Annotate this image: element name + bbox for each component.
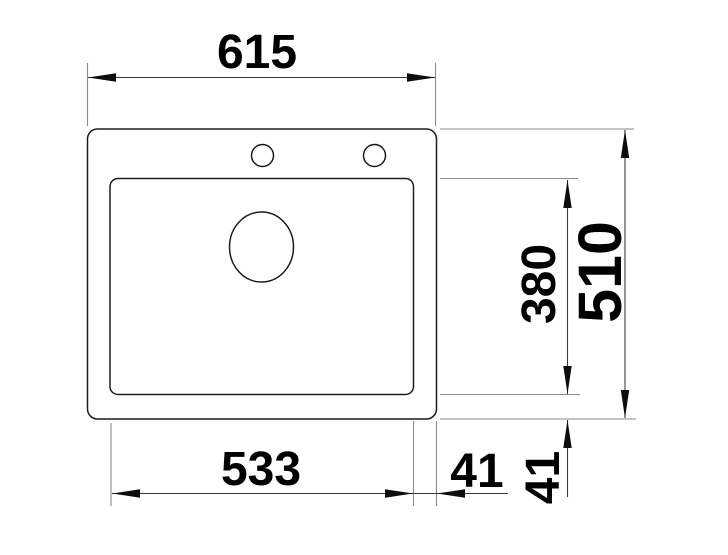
arrow-bowl-width-left bbox=[112, 489, 140, 497]
arrow-bowl-depth-top bbox=[563, 180, 571, 208]
sink-technical-drawing: 615 533 41 380 510 41 bbox=[0, 0, 728, 555]
arrow-bowl-depth-bottom bbox=[563, 366, 571, 394]
drain-hole bbox=[230, 212, 294, 282]
label-bowl-width: 533 bbox=[221, 443, 301, 496]
tap-hole-left bbox=[252, 145, 274, 167]
arrow-overall-width-right bbox=[407, 73, 435, 81]
arrow-overall-depth-bottom bbox=[621, 390, 629, 418]
arrow-bowl-width-right bbox=[385, 489, 413, 497]
dimension-labels: 615 533 41 380 510 41 bbox=[217, 26, 634, 504]
label-bowl-depth: 380 bbox=[513, 244, 566, 324]
arrow-bottom-offset bbox=[563, 420, 571, 448]
drawing-svg: 615 533 41 380 510 41 bbox=[0, 0, 728, 555]
label-bottom-offset: 41 bbox=[517, 451, 570, 504]
arrow-overall-depth-top bbox=[621, 130, 629, 158]
sink-bowl-outline bbox=[110, 179, 414, 395]
label-right-offset: 41 bbox=[450, 445, 503, 498]
tap-hole-right bbox=[364, 145, 386, 167]
arrow-overall-width-left bbox=[88, 73, 116, 81]
label-overall-depth: 510 bbox=[566, 221, 634, 323]
sink-outer-rim bbox=[88, 129, 437, 419]
sink-geometry bbox=[88, 129, 437, 419]
label-overall-width: 615 bbox=[217, 26, 297, 79]
